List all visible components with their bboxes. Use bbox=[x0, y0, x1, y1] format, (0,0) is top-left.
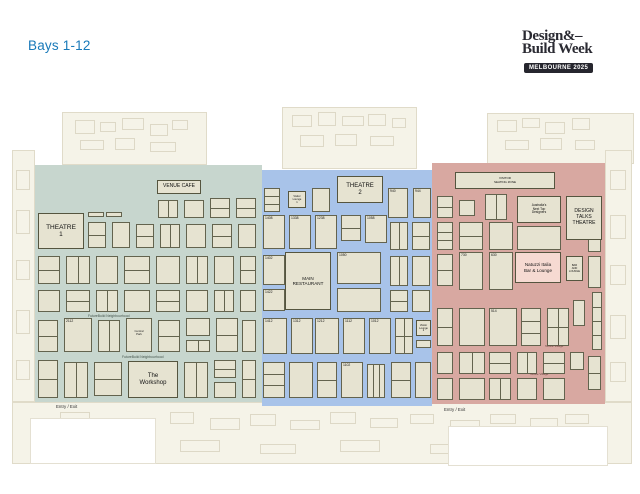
booth-1102: 1102 bbox=[341, 362, 363, 398]
building-outline-detail bbox=[170, 412, 194, 424]
building-outline-detail bbox=[16, 170, 30, 190]
booth bbox=[214, 382, 236, 398]
booth bbox=[412, 222, 430, 250]
venue-visitor-lounge-2: Visitor Lounge 2 bbox=[416, 320, 431, 336]
booth bbox=[341, 215, 361, 241]
booth-divider bbox=[318, 380, 336, 381]
building-outline-detail bbox=[75, 120, 95, 134]
booth bbox=[459, 308, 485, 346]
booth-divider bbox=[593, 335, 601, 336]
venue-design-talks-theatre: DESIGN TALKS THEATRE bbox=[566, 196, 602, 240]
booth-divider bbox=[109, 321, 110, 351]
booth bbox=[264, 188, 280, 212]
booth bbox=[592, 292, 602, 350]
building-outline-detail bbox=[318, 112, 336, 126]
booth-number: 1422 bbox=[265, 290, 273, 295]
building-outline-detail bbox=[150, 124, 168, 136]
booth-divider bbox=[170, 225, 171, 247]
booth-divider bbox=[438, 270, 452, 271]
booth bbox=[210, 198, 230, 218]
booth-number: 730 bbox=[461, 253, 467, 258]
booth bbox=[98, 320, 120, 352]
booth-divider bbox=[522, 333, 540, 334]
booth bbox=[547, 308, 569, 346]
booth bbox=[459, 222, 483, 250]
booth-divider bbox=[125, 270, 149, 271]
booth-divider bbox=[460, 236, 482, 237]
booth-divider bbox=[237, 208, 255, 209]
building-outline-detail bbox=[610, 265, 626, 285]
booth bbox=[184, 200, 204, 218]
booth-number: 1408 bbox=[265, 216, 273, 221]
building-outline-detail bbox=[410, 414, 434, 424]
booth bbox=[186, 340, 210, 352]
booth-divider bbox=[243, 379, 255, 380]
booth bbox=[459, 378, 485, 400]
booth-divider bbox=[265, 204, 279, 205]
booth bbox=[106, 212, 122, 217]
page-title: Bays 1-12 bbox=[28, 38, 91, 53]
venue-visitor-seating-zone: VISITOR SEATING ZONE bbox=[455, 172, 555, 189]
booth bbox=[437, 352, 453, 374]
booth-divider bbox=[404, 319, 405, 353]
booth bbox=[289, 362, 313, 398]
booth-divider bbox=[391, 301, 407, 302]
booth-divider bbox=[159, 336, 179, 337]
building-outline-detail bbox=[300, 135, 324, 147]
booth bbox=[263, 362, 285, 398]
building-outline-detail bbox=[16, 260, 30, 280]
booth bbox=[437, 378, 453, 400]
booth bbox=[391, 362, 411, 398]
booth-1212: 1212 bbox=[315, 318, 339, 354]
booth bbox=[485, 194, 507, 220]
booth bbox=[88, 212, 104, 217]
booth-divider bbox=[157, 301, 179, 302]
building-outline-detail bbox=[210, 418, 240, 430]
building-outline-detail bbox=[490, 414, 516, 424]
booth bbox=[94, 362, 122, 396]
booth-number: 2112 bbox=[66, 319, 73, 324]
booth bbox=[64, 362, 88, 398]
booth-number: 1102 bbox=[343, 363, 350, 368]
booth bbox=[88, 222, 106, 248]
booth-1312: 1312 bbox=[291, 318, 313, 354]
booth-1112: 1112 bbox=[343, 318, 365, 354]
booth bbox=[214, 360, 236, 378]
booth-number: 514 bbox=[491, 309, 497, 314]
building-outline-detail bbox=[340, 440, 380, 452]
building-outline-detail bbox=[260, 444, 296, 454]
booth-number: 1212 bbox=[317, 319, 325, 324]
booth-2112: 2112 bbox=[64, 318, 92, 352]
booth-divider bbox=[224, 291, 225, 311]
booth bbox=[517, 352, 537, 374]
booth-divider bbox=[76, 363, 77, 397]
booth-divider bbox=[241, 270, 255, 271]
booth bbox=[214, 290, 234, 312]
booth bbox=[416, 340, 431, 348]
booth-divider bbox=[215, 369, 235, 370]
booth-divider bbox=[198, 341, 199, 351]
booth-divider bbox=[39, 336, 57, 337]
booth-divider bbox=[593, 307, 601, 308]
booth bbox=[240, 256, 256, 284]
booth bbox=[489, 378, 511, 400]
booth-divider bbox=[264, 374, 284, 375]
booth bbox=[437, 254, 453, 286]
venue-visitor-lounge-1: Visitor Lounge 1 bbox=[288, 191, 306, 208]
booth bbox=[317, 362, 337, 398]
textile-village-label-1: Textile Village bbox=[545, 344, 563, 348]
booth bbox=[437, 196, 453, 218]
booth-divider bbox=[500, 379, 501, 399]
booth bbox=[437, 308, 453, 346]
building-outline-detail bbox=[370, 136, 394, 146]
booth-divider bbox=[589, 373, 600, 374]
booth-divider bbox=[137, 236, 153, 237]
building-outline-detail bbox=[610, 170, 626, 190]
booth bbox=[186, 224, 206, 248]
venue-theatre-2: THEATRE 2 bbox=[337, 176, 383, 203]
building-outline-detail bbox=[540, 138, 562, 150]
building-outline-detail bbox=[150, 142, 176, 152]
booth-divider bbox=[593, 321, 601, 322]
booth-1050: 1050 bbox=[337, 252, 381, 284]
booth-divider bbox=[438, 207, 452, 208]
booth-number: 1012 bbox=[371, 319, 379, 324]
building-outline-detail bbox=[610, 315, 626, 339]
entry-exit-label-right: Entry / Exit bbox=[444, 407, 465, 412]
building-outline-detail bbox=[115, 138, 135, 150]
booth-divider bbox=[527, 353, 528, 373]
booth bbox=[517, 226, 561, 250]
building-outline-detail bbox=[565, 414, 589, 424]
booth-divider bbox=[472, 353, 473, 373]
booth-944: 944 bbox=[413, 188, 431, 218]
booth bbox=[390, 290, 408, 312]
booth-divider bbox=[39, 270, 59, 271]
booth bbox=[543, 378, 565, 400]
booth bbox=[186, 256, 208, 284]
booth-divider bbox=[438, 240, 452, 241]
booth bbox=[367, 364, 385, 398]
building-outline-detail bbox=[392, 118, 406, 128]
booth bbox=[186, 318, 210, 336]
booth-1012: 1012 bbox=[369, 318, 391, 354]
booth-number: 1058 bbox=[367, 216, 375, 221]
booth bbox=[160, 224, 180, 248]
booth bbox=[158, 200, 178, 218]
booth-divider bbox=[544, 363, 564, 364]
building-outline-detail bbox=[292, 115, 312, 127]
booth-divider bbox=[490, 363, 510, 364]
booth-divider bbox=[265, 196, 279, 197]
booth-1412: 1412 bbox=[263, 318, 287, 354]
booth-divider bbox=[107, 291, 108, 311]
booth bbox=[124, 290, 150, 312]
booth-number: 1112 bbox=[345, 319, 352, 324]
booth bbox=[242, 360, 256, 398]
booth bbox=[124, 256, 150, 284]
building-outline-detail bbox=[180, 440, 220, 452]
building-outline-detail bbox=[100, 122, 116, 132]
futurebuild-label-1: FutureBuild Neighbourhood bbox=[88, 314, 129, 318]
booth bbox=[489, 352, 511, 374]
building-outline-detail bbox=[505, 140, 529, 150]
building-outline-detail bbox=[370, 418, 398, 428]
building-outline-detail bbox=[342, 116, 364, 126]
booth bbox=[38, 290, 60, 312]
building-outline-detail bbox=[335, 134, 357, 146]
entry-exit-notch bbox=[30, 418, 156, 464]
booth bbox=[212, 224, 232, 248]
booth bbox=[186, 290, 208, 312]
booth bbox=[337, 288, 381, 312]
building-outline-detail bbox=[610, 362, 626, 382]
building-outline-detail bbox=[16, 210, 30, 234]
booth: Central Park bbox=[126, 318, 152, 352]
booth-divider bbox=[438, 327, 452, 328]
booth-divider bbox=[95, 379, 121, 380]
booth bbox=[412, 256, 430, 286]
booth bbox=[312, 188, 330, 212]
booth-divider bbox=[522, 321, 540, 322]
building-outline-detail bbox=[497, 120, 517, 132]
logo-line-2: Build Week bbox=[522, 43, 612, 56]
booth-divider bbox=[438, 232, 452, 233]
booth bbox=[570, 352, 584, 370]
booth bbox=[390, 222, 408, 250]
booth-1402: 1402 bbox=[263, 255, 285, 285]
venue-the-workshop: The Workshop bbox=[128, 361, 178, 398]
building-outline-detail bbox=[80, 140, 104, 150]
booth bbox=[38, 256, 60, 284]
building-outline-detail bbox=[575, 140, 595, 150]
booth bbox=[136, 224, 154, 248]
booth bbox=[489, 222, 513, 250]
booth bbox=[543, 352, 565, 374]
booth bbox=[184, 362, 208, 398]
booth-number: 1402 bbox=[265, 256, 273, 261]
booth-1422: 1422 bbox=[263, 289, 285, 311]
building-outline-detail bbox=[16, 360, 30, 380]
booth-divider bbox=[89, 235, 105, 236]
booth-divider bbox=[264, 385, 284, 386]
booth-1238: 1238 bbox=[315, 215, 337, 249]
booth bbox=[66, 256, 90, 284]
building-outline-detail bbox=[172, 120, 188, 130]
building-outline-detail bbox=[330, 412, 356, 424]
booth-divider bbox=[399, 223, 400, 249]
booth-number: 1238 bbox=[317, 216, 325, 221]
building-outline-detail bbox=[522, 118, 540, 128]
booth bbox=[216, 318, 238, 352]
booth-630: 630 bbox=[489, 252, 513, 290]
booth-730: 730 bbox=[459, 252, 483, 290]
booth bbox=[38, 320, 58, 352]
booth-divider bbox=[78, 257, 79, 283]
building-outline-detail bbox=[610, 215, 626, 239]
booth bbox=[415, 362, 431, 398]
booth bbox=[240, 290, 256, 312]
booth bbox=[242, 320, 256, 352]
booth-divider bbox=[213, 236, 231, 237]
floorplan-page: Bays 1-12 Design&– Build Week MELBOURNE … bbox=[0, 0, 640, 494]
venue-venue-cafe: VENUE CAFE bbox=[157, 180, 201, 194]
booth-divider bbox=[373, 365, 374, 397]
booth-1408: 1408 bbox=[263, 215, 285, 249]
booth bbox=[517, 378, 537, 400]
venue-next-top-designers: Australia's Next Top Designers bbox=[517, 196, 561, 223]
booth-number: 1338 bbox=[291, 216, 299, 221]
booth-divider bbox=[342, 228, 360, 229]
booth bbox=[588, 256, 601, 288]
booth bbox=[96, 256, 118, 284]
booth-number: 944 bbox=[415, 189, 421, 194]
booth-divider bbox=[211, 208, 229, 209]
entry-exit-notch bbox=[448, 426, 608, 466]
booth-940: 940 bbox=[388, 188, 408, 218]
booth bbox=[96, 290, 118, 312]
booth bbox=[573, 300, 585, 326]
building-outline-detail bbox=[572, 118, 590, 130]
booth bbox=[236, 198, 256, 218]
booth-1058: 1058 bbox=[365, 215, 387, 243]
building-outline-detail bbox=[16, 310, 30, 334]
booth-divider bbox=[67, 301, 89, 302]
booth-number: 940 bbox=[390, 189, 396, 194]
booth-number: 1412 bbox=[265, 319, 273, 324]
venue-natuzzi-bar-lounge: Natuzzi Italia Bar & Lounge bbox=[515, 252, 561, 283]
entry-exit-label-left: Entry / Exit bbox=[56, 404, 77, 409]
booth bbox=[112, 222, 130, 248]
building-outline-detail bbox=[122, 118, 144, 130]
booth-number: 1050 bbox=[339, 253, 347, 258]
booth-label: Central Park bbox=[127, 330, 151, 336]
booth-divider bbox=[399, 257, 400, 285]
booth-514: 514 bbox=[489, 308, 517, 346]
booth bbox=[158, 320, 180, 352]
building-outline-detail bbox=[290, 420, 320, 430]
booth bbox=[521, 308, 541, 346]
venue-theatre-1: THEATRE 1 bbox=[38, 213, 84, 249]
booth-divider bbox=[196, 363, 197, 397]
booth-divider bbox=[392, 380, 410, 381]
building-outline-detail bbox=[368, 114, 386, 126]
textile-village-label-2: Textile Village bbox=[530, 372, 548, 376]
booth-1338: 1338 bbox=[289, 215, 311, 249]
booth bbox=[437, 222, 453, 250]
booth-divider bbox=[413, 236, 429, 237]
booth bbox=[459, 352, 485, 374]
booth bbox=[412, 290, 430, 312]
booth-number: 1312 bbox=[293, 319, 301, 324]
venue-bar-and-lounge: BAR AND LOUNGE bbox=[566, 256, 583, 281]
booth-divider bbox=[496, 195, 497, 219]
booth bbox=[459, 200, 475, 216]
booth-divider bbox=[379, 365, 380, 397]
brand-logo: Design&– Build Week MELBOURNE 2025 bbox=[522, 30, 612, 74]
logo-badge: MELBOURNE 2025 bbox=[524, 63, 593, 73]
building-outline-detail bbox=[545, 122, 565, 134]
booth bbox=[395, 318, 413, 354]
booth bbox=[238, 224, 256, 248]
booth bbox=[588, 356, 601, 390]
booth bbox=[390, 256, 408, 286]
booth-divider bbox=[197, 257, 198, 283]
booth-number: 630 bbox=[491, 253, 497, 258]
booth-divider bbox=[217, 335, 237, 336]
booth bbox=[38, 360, 58, 398]
booth-divider bbox=[168, 201, 169, 217]
building-outline-detail bbox=[250, 414, 276, 426]
booth bbox=[214, 256, 234, 284]
venue-main-restaurant: MAIN RESTAURANT bbox=[285, 252, 331, 310]
futurebuild-label-2: FutureBuild Neighbourhood bbox=[122, 355, 163, 359]
booth bbox=[66, 290, 90, 312]
booth bbox=[156, 256, 180, 284]
booth-divider bbox=[558, 309, 559, 345]
booth bbox=[156, 290, 180, 312]
booth-divider bbox=[39, 379, 57, 380]
